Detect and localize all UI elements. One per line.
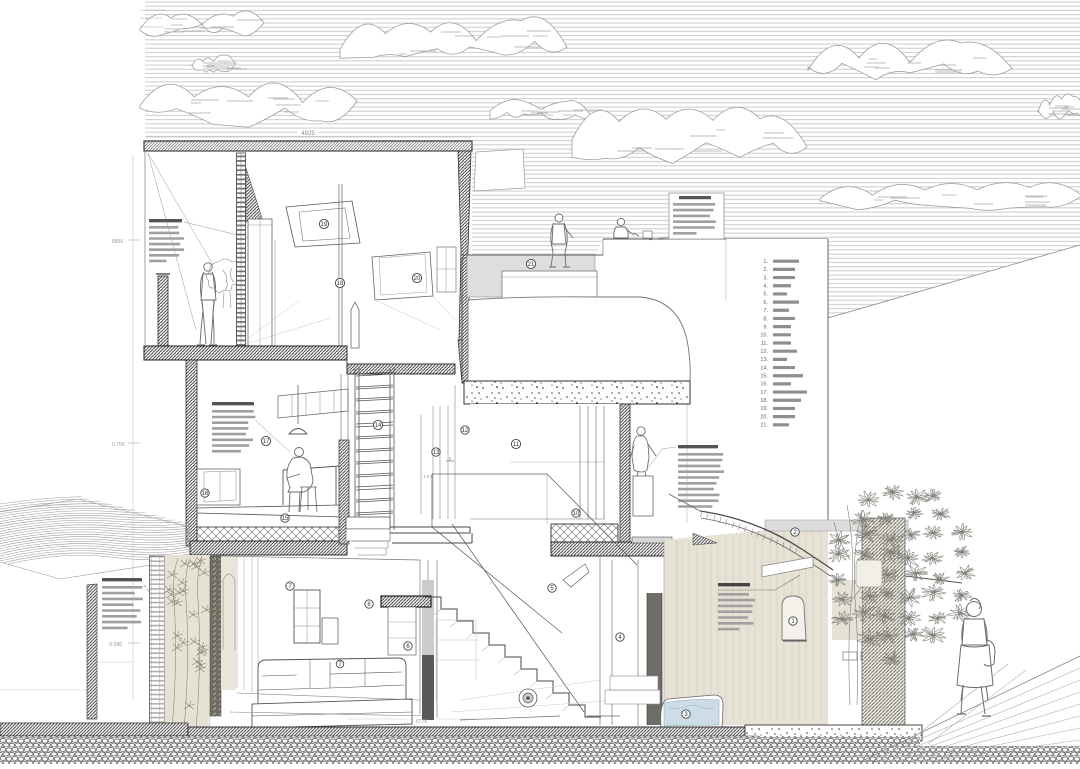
svg-text:21.: 21. — [760, 423, 768, 429]
svg-text:4925: 4925 — [301, 131, 315, 137]
svg-text:20.: 20. — [760, 414, 768, 420]
svg-text:13.: 13. — [760, 357, 768, 363]
svg-text:0.750: 0.750 — [112, 442, 125, 448]
svg-text:17.: 17. — [760, 390, 768, 396]
svg-text:2.: 2. — [763, 267, 768, 273]
svg-text:6856: 6856 — [112, 239, 123, 245]
svg-text:17: 17 — [263, 439, 270, 445]
svg-text:11.: 11. — [761, 341, 769, 347]
svg-text:20: 20 — [414, 276, 421, 282]
svg-text:19.: 19. — [760, 406, 768, 412]
svg-text:-0.590: -0.590 — [108, 642, 122, 648]
svg-text:18: 18 — [337, 281, 344, 287]
svg-text:21: 21 — [528, 262, 535, 268]
svg-text:12: 12 — [462, 428, 469, 434]
svg-text:10: 10 — [573, 511, 580, 517]
svg-text:3.: 3. — [763, 275, 768, 281]
svg-text:15.: 15. — [760, 374, 768, 380]
svg-text:6778: 6778 — [416, 719, 427, 725]
svg-text:11: 11 — [513, 442, 520, 448]
svg-text:8.: 8. — [763, 316, 768, 322]
svg-text:12.: 12. — [760, 349, 768, 355]
svg-text:10.: 10. — [760, 333, 768, 339]
svg-text:7.: 7. — [763, 308, 768, 314]
svg-text:16: 16 — [202, 491, 209, 497]
svg-text:15: 15 — [282, 516, 289, 522]
svg-text:6.: 6. — [763, 300, 768, 306]
svg-text:4.: 4. — [763, 284, 768, 290]
svg-text:16.: 16. — [760, 382, 768, 388]
svg-text:19: 19 — [321, 222, 328, 228]
svg-text:1.: 1. — [763, 259, 768, 265]
svg-text:13: 13 — [433, 450, 440, 456]
svg-text:9.: 9. — [763, 324, 768, 330]
svg-text:5.: 5. — [763, 292, 768, 298]
svg-text:14.: 14. — [760, 365, 768, 371]
svg-text:18.: 18. — [760, 398, 768, 404]
svg-text:14: 14 — [375, 423, 382, 429]
